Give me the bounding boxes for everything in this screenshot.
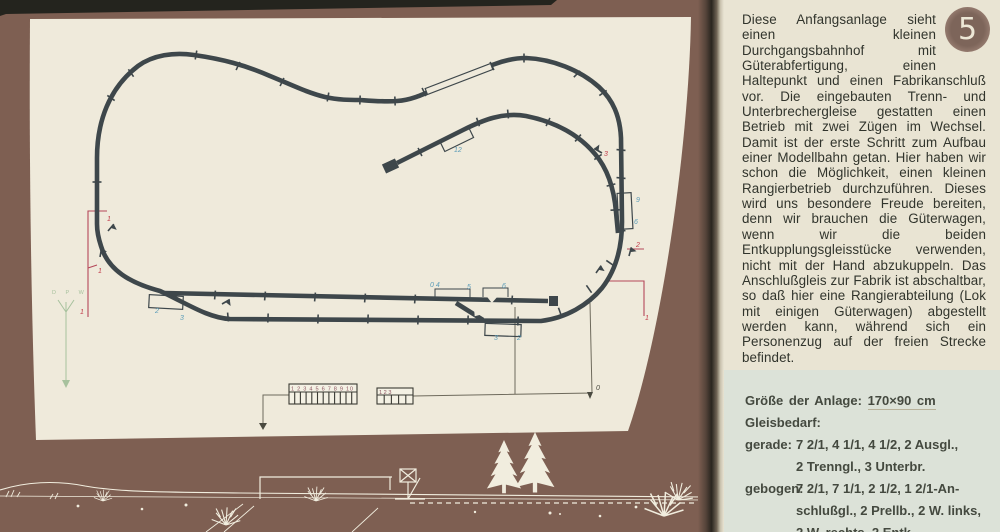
track-label: 6: [634, 219, 638, 226]
wire-label: 1: [645, 315, 649, 322]
catalog-page-spread: D P W: [0, 0, 1000, 532]
track-label: 3: [494, 335, 498, 342]
info-box: Größe der Anlage: 170×90 cm Gleisbedarf:…: [714, 370, 1000, 532]
wire-label: 1: [107, 216, 111, 223]
wire-label: 2: [635, 242, 640, 249]
page-number-badge: 5: [945, 7, 990, 52]
factory-buffer-stop: [384, 163, 397, 169]
track-needs-heading: Gleisbedarf:: [745, 412, 990, 434]
track-plan-illustration: D P W: [0, 0, 708, 532]
track-label: 5: [467, 284, 471, 291]
feed-label: 0: [596, 385, 600, 392]
row-label: gerade:: [745, 434, 796, 478]
track-label: 12: [454, 147, 462, 154]
track-label: 9: [636, 197, 640, 204]
track-needs-row-curved: gebogen: 7 2/1, 7 1/1, 2 1/2, 1 2/1-An- …: [745, 478, 990, 532]
track-label: 2: [516, 335, 521, 342]
description-text: Diese Anfangsanlage sieht einen kleinen …: [742, 12, 986, 365]
page-number: 5: [958, 15, 977, 45]
description-column: Diese Anfangsanlage sieht einen kleinen …: [742, 12, 986, 365]
control-panel-large-numbers: 1 2 3 4 5 6 7 8 9 10: [291, 387, 353, 393]
layout-size-line: Größe der Anlage: 170×90 cm: [745, 390, 990, 412]
page-gutter: [698, 0, 724, 532]
track-label: 6: [502, 283, 506, 290]
row-label: gebogen:: [745, 478, 796, 532]
wire-label: 1: [80, 309, 84, 316]
control-panel-small-numbers: 1 2 3: [379, 390, 391, 396]
track-label: 2: [154, 308, 159, 315]
row-value: 7 2/1, 7 1/1, 2 1/2, 1 2/1-An- schlußgl.…: [796, 478, 990, 532]
layout-size-value: 170×90 cm: [868, 393, 936, 410]
track-label: 0 4: [430, 282, 440, 289]
signal-letters: D P W: [52, 290, 88, 296]
wire-label: 3: [604, 151, 608, 158]
wire-label: 1: [98, 268, 102, 275]
track-label: 3: [180, 315, 184, 322]
track-needs-row-straight: gerade: 7 2/1, 4 1/1, 4 1/2, 2 Ausgl., 2…: [745, 434, 990, 478]
row-value: 7 2/1, 4 1/1, 4 1/2, 2 Ausgl., 2 Trenngl…: [796, 434, 990, 478]
layout-size-label: Größe der Anlage:: [745, 393, 862, 408]
